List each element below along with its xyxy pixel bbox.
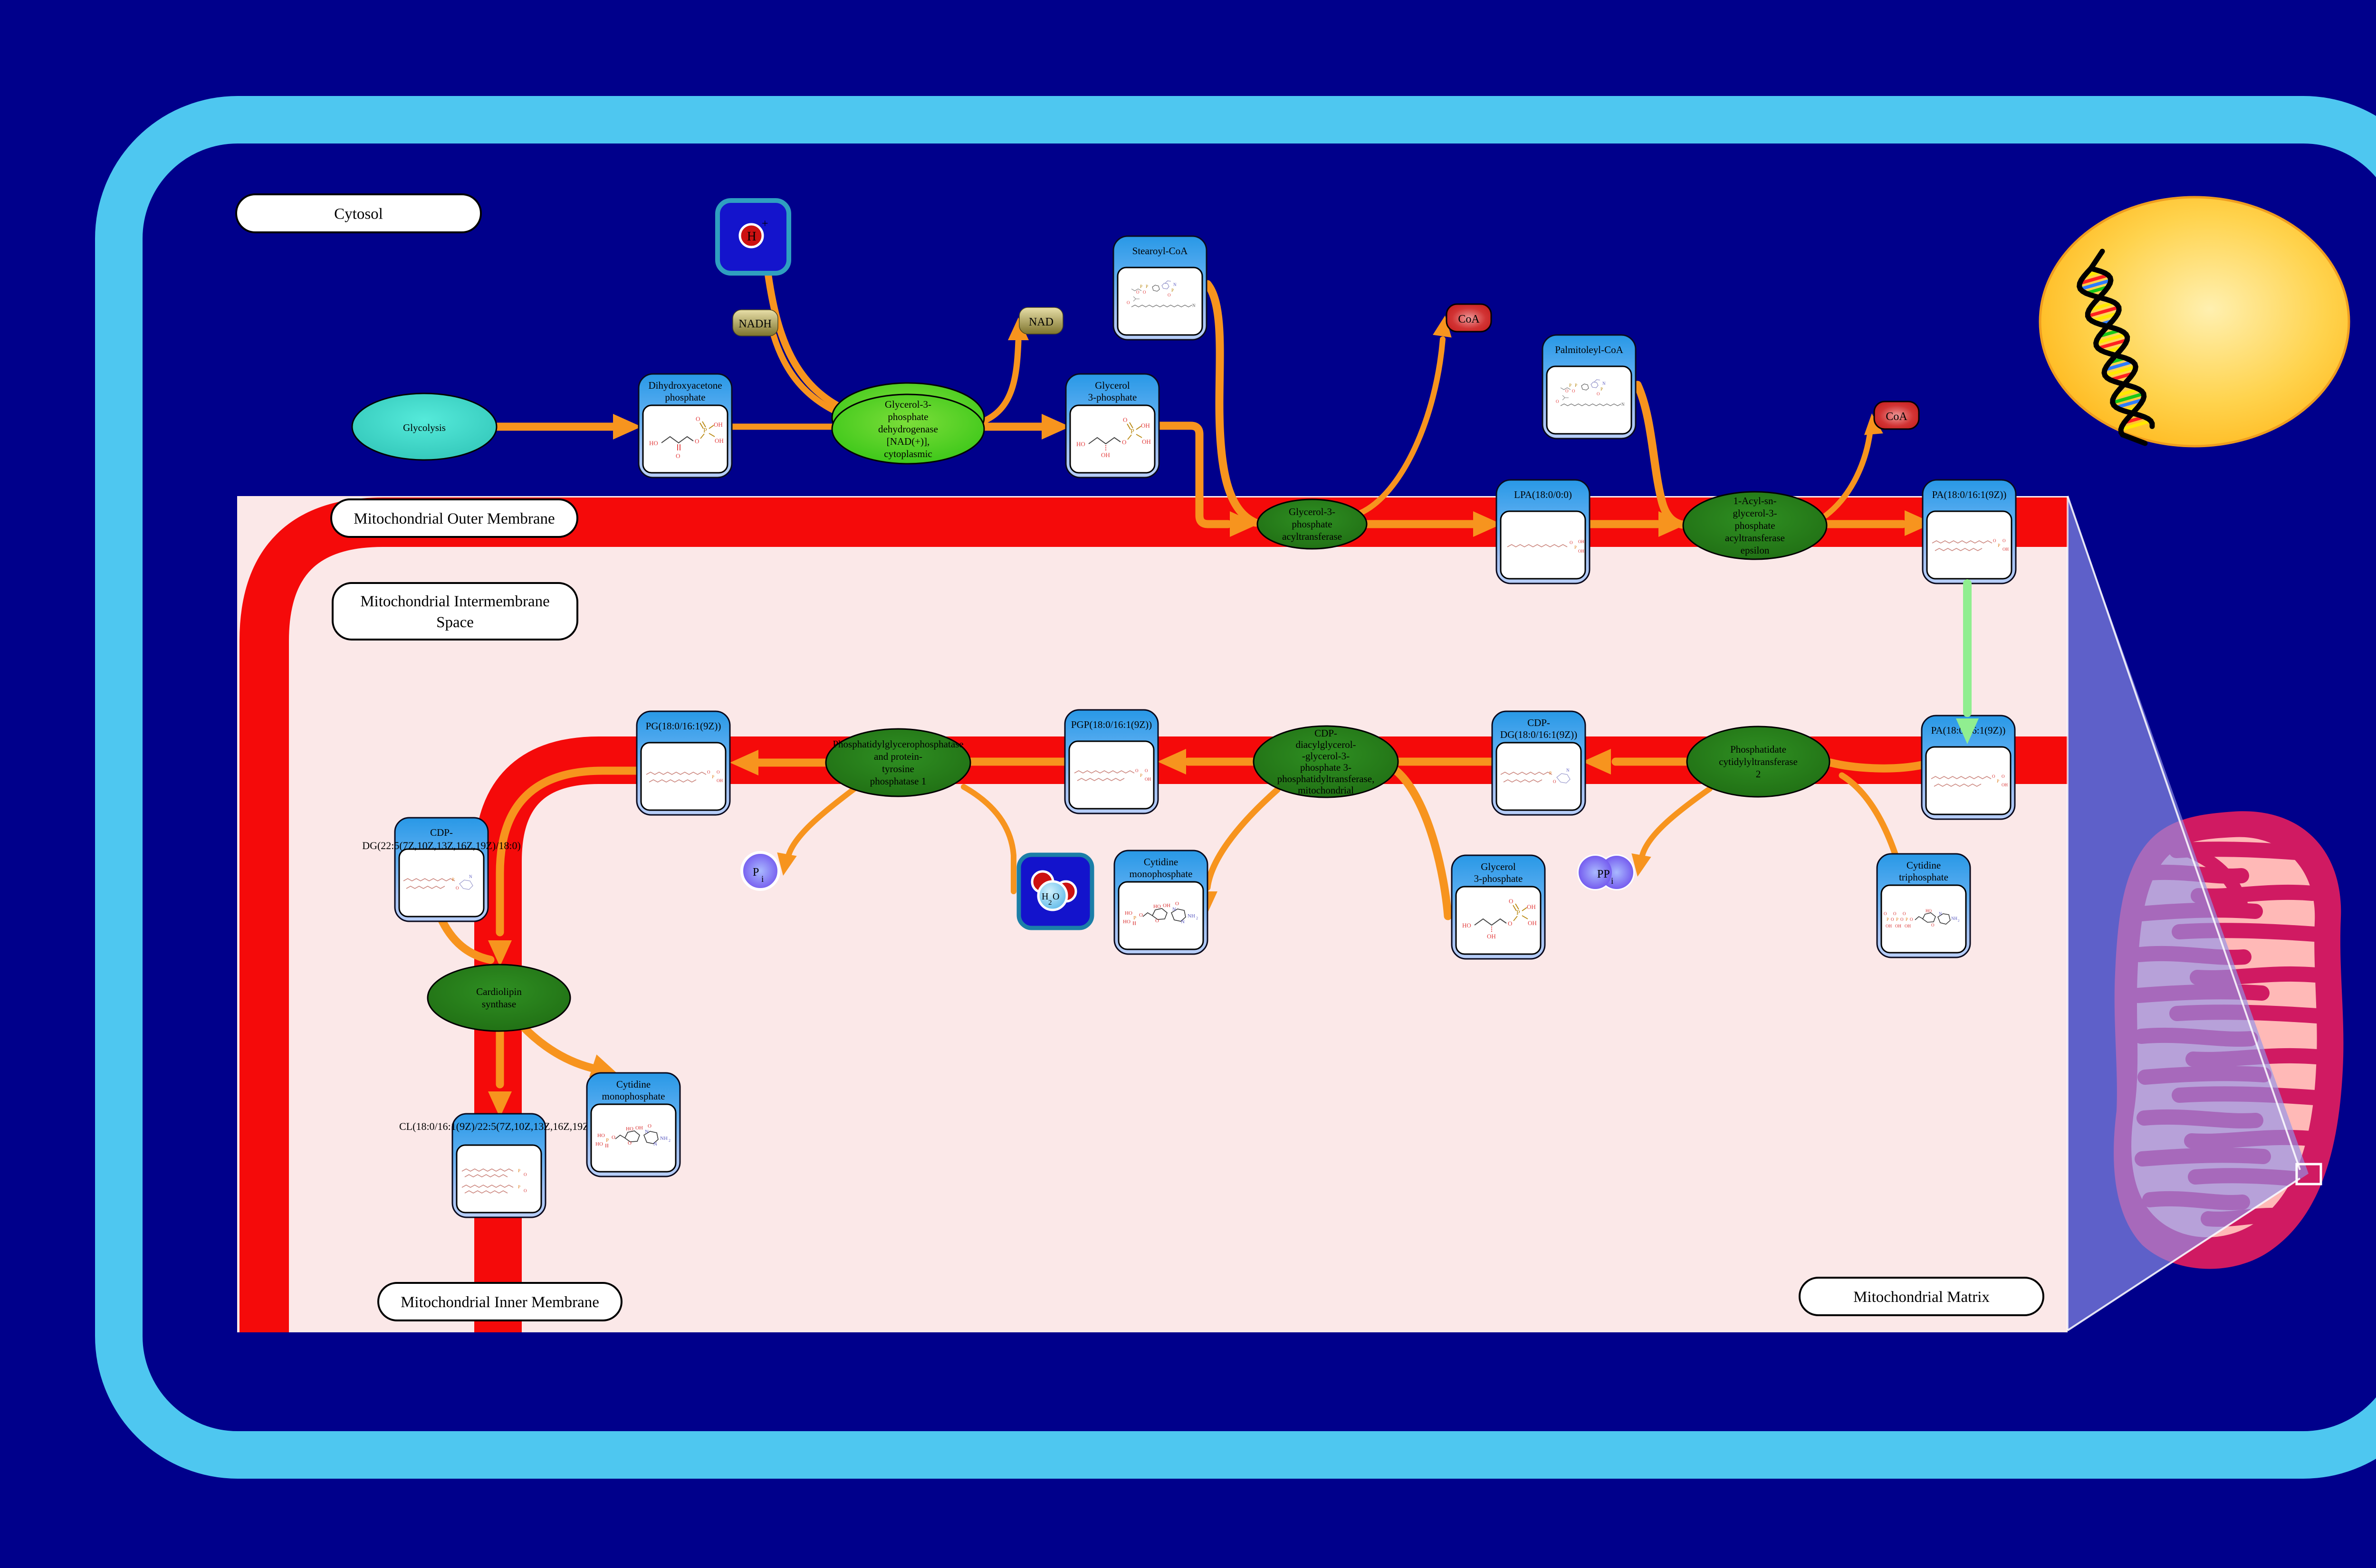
svg-text:O: O — [1556, 399, 1559, 404]
svg-text:DG(22:5(7Z,10Z,13Z,16Z,19Z)/18: DG(22:5(7Z,10Z,13Z,16Z,19Z)/18:0) — [362, 840, 521, 851]
svg-text:phosphate 3-: phosphate 3- — [1300, 762, 1351, 773]
svg-text:O: O — [1884, 911, 1887, 916]
svg-text:O: O — [1168, 293, 1171, 297]
svg-text:2: 2 — [1196, 916, 1198, 920]
svg-text:Glycerol-3-: Glycerol-3- — [885, 399, 931, 410]
svg-text:OH: OH — [1527, 903, 1536, 910]
svg-text:O: O — [1123, 416, 1127, 423]
svg-text:HO: HO — [649, 440, 658, 447]
svg-text:i: i — [1611, 876, 1613, 886]
svg-text:N: N — [1172, 907, 1176, 912]
svg-text:phosphatidyltransferase,: phosphatidyltransferase, — [1277, 773, 1375, 784]
svg-text:O: O — [676, 452, 680, 459]
svg-text:P: P — [1516, 909, 1520, 917]
svg-text:i: i — [761, 874, 764, 884]
svg-text:O: O — [628, 1140, 632, 1146]
svg-text:O: O — [717, 770, 720, 774]
svg-text:Phosphatidate: Phosphatidate — [1730, 744, 1786, 755]
svg-text:glycerol-3-: glycerol-3- — [1733, 507, 1777, 519]
svg-text:OH: OH — [635, 1125, 643, 1131]
svg-text:O: O — [1992, 774, 1995, 779]
svg-text:1-Acyl-sn-: 1-Acyl-sn- — [1734, 495, 1777, 507]
svg-text:PA(18:0/16:1(9Z)): PA(18:0/16:1(9Z)) — [1932, 489, 2007, 500]
svg-text:acyltransferase: acyltransferase — [1282, 531, 1342, 542]
svg-text:O: O — [1145, 768, 1148, 773]
svg-text:O: O — [1143, 290, 1146, 295]
svg-text:N: N — [1602, 381, 1606, 386]
svg-text:[NAD(+)],: [NAD(+)], — [887, 436, 930, 447]
svg-text:HO: HO — [626, 1126, 633, 1132]
svg-text:acyltransferase: acyltransferase — [1725, 532, 1785, 544]
svg-text:P: P — [703, 427, 707, 434]
svg-text:NADH: NADH — [738, 318, 771, 330]
svg-text:phosphate: phosphate — [1292, 518, 1332, 530]
svg-text:HO: HO — [1125, 910, 1132, 916]
svg-text:Glycolysis: Glycolysis — [403, 422, 446, 433]
svg-text:P: P — [1575, 383, 1577, 388]
svg-text:-glycerol-3-: -glycerol-3- — [1302, 750, 1350, 762]
svg-text:O: O — [1509, 898, 1513, 905]
svg-text:Mitochondrial Inner Membrane: Mitochondrial Inner Membrane — [401, 1294, 599, 1311]
svg-text:O: O — [1572, 389, 1575, 393]
svg-text:Glycerol: Glycerol — [1095, 380, 1130, 391]
svg-text:Palmitoleyl-CoA: Palmitoleyl-CoA — [1555, 344, 1623, 355]
svg-text:O: O — [648, 1123, 651, 1129]
svg-text:OH: OH — [1487, 933, 1496, 940]
svg-text:CDP-: CDP- — [430, 827, 453, 838]
svg-text:2: 2 — [1048, 899, 1052, 907]
svg-text:epsilon: epsilon — [1741, 545, 1770, 556]
svg-text:P: P — [1140, 284, 1142, 289]
svg-text:OH: OH — [717, 778, 723, 783]
svg-text:CL(18:0/16:1(9Z)/22:5(7Z,10Z,1: CL(18:0/16:1(9Z)/22:5(7Z,10Z,13Z,16Z,19Z… — [399, 1120, 614, 1132]
svg-text:P: P — [1574, 545, 1577, 550]
svg-text:O: O — [696, 415, 700, 422]
svg-text:OH: OH — [1141, 422, 1150, 429]
svg-text:N: N — [653, 1141, 657, 1147]
svg-text:CoA: CoA — [1458, 313, 1480, 325]
svg-text:P: P — [753, 866, 759, 879]
svg-text:2: 2 — [1756, 768, 1761, 780]
svg-text:2: 2 — [669, 1138, 671, 1143]
svg-text:H: H — [1042, 891, 1048, 902]
svg-text:Cytosol: Cytosol — [334, 206, 383, 223]
svg-text:OH: OH — [715, 437, 724, 444]
svg-text:CDP-: CDP- — [1314, 727, 1337, 739]
svg-text:Cytidine: Cytidine — [1907, 860, 1941, 871]
svg-text:OH: OH — [1145, 777, 1151, 782]
svg-text:P: P — [1906, 917, 1908, 922]
svg-text:O: O — [456, 886, 459, 890]
svg-text:and protein-: and protein- — [874, 751, 922, 762]
svg-text:HO: HO — [597, 1133, 605, 1138]
svg-text:Cardiolipin: Cardiolipin — [476, 986, 522, 997]
svg-text:P: P — [1140, 773, 1142, 778]
svg-text:P: P — [452, 877, 454, 882]
svg-text:Cytidine: Cytidine — [1144, 856, 1178, 868]
svg-text:P: P — [1887, 917, 1889, 922]
svg-text:P: P — [1131, 428, 1134, 435]
svg-text:OH: OH — [714, 421, 723, 428]
svg-text:CoA: CoA — [1886, 411, 1907, 423]
svg-text:O: O — [1910, 917, 1913, 922]
svg-text:O: O — [1155, 918, 1159, 924]
svg-text:OH: OH — [1578, 549, 1584, 554]
svg-text:OH: OH — [2002, 547, 2009, 552]
svg-text:O: O — [2002, 538, 2006, 543]
svg-text:dehydrogenase: dehydrogenase — [878, 423, 938, 435]
svg-text:Mitochondrial Matrix: Mitochondrial Matrix — [1853, 1289, 1990, 1306]
svg-text:Mitochondrial Outer Membrane: Mitochondrial Outer Membrane — [354, 510, 555, 527]
svg-text:N: N — [1181, 919, 1185, 925]
svg-text:diacylglycerol-: diacylglycerol- — [1295, 739, 1356, 750]
svg-text:O: O — [1053, 891, 1059, 902]
svg-text:PGP(18:0/16:1(9Z)): PGP(18:0/16:1(9Z)) — [1071, 719, 1152, 730]
svg-text:Glycerol-3-: Glycerol-3- — [1289, 506, 1335, 517]
svg-text:O: O — [2002, 774, 2005, 779]
svg-text:DG(18:0/16:1(9Z)): DG(18:0/16:1(9Z)) — [1500, 729, 1577, 740]
svg-text:monophosphate: monophosphate — [1130, 868, 1193, 880]
svg-text:monophosphate: monophosphate — [602, 1090, 665, 1102]
svg-text:OH: OH — [1101, 451, 1110, 459]
svg-text:NH: NH — [660, 1136, 668, 1141]
svg-text:O: O — [1565, 389, 1569, 393]
svg-text:N: N — [1621, 402, 1625, 407]
svg-text:H: H — [747, 229, 757, 243]
svg-text:Phosphatidylglycerophosphatase: Phosphatidylglycerophosphatase — [833, 738, 963, 750]
svg-text:O: O — [707, 770, 710, 774]
svg-text:Dihydroxyacetone: Dihydroxyacetone — [648, 380, 722, 391]
svg-text:NAD: NAD — [1029, 316, 1054, 328]
svg-text:mitochondrial: mitochondrial — [1298, 784, 1354, 796]
svg-text:OH: OH — [2002, 783, 2008, 787]
svg-text:phosphate: phosphate — [1734, 520, 1775, 531]
svg-text:HO: HO — [1076, 440, 1085, 448]
svg-text:OH: OH — [1886, 924, 1892, 928]
svg-text:O: O — [1553, 779, 1556, 784]
svg-text:O: O — [1903, 911, 1906, 916]
svg-text:Cytidine: Cytidine — [616, 1079, 651, 1090]
svg-text:Space: Space — [436, 614, 474, 631]
svg-text:P: P — [1569, 383, 1571, 388]
svg-text:HO: HO — [1462, 922, 1471, 929]
svg-text:P: P — [1896, 917, 1898, 922]
svg-text:P: P — [1146, 284, 1148, 289]
svg-text:P: P — [1600, 387, 1603, 392]
svg-text:P: P — [518, 1185, 520, 1189]
svg-text:N: N — [1192, 303, 1196, 308]
svg-text:P: P — [606, 1138, 609, 1143]
svg-text:OH: OH — [1895, 924, 1901, 928]
svg-text:O: O — [1597, 392, 1600, 396]
svg-text:CDP-: CDP- — [1527, 717, 1550, 728]
svg-text:phosphatase 1: phosphatase 1 — [870, 775, 926, 787]
svg-text:HO: HO — [1926, 908, 1932, 913]
svg-text:O: O — [695, 438, 699, 445]
svg-text:O: O — [1993, 538, 1996, 543]
svg-text:N: N — [469, 874, 472, 879]
svg-text:3-phosphate: 3-phosphate — [1474, 873, 1523, 884]
svg-text:cytoplasmic: cytoplasmic — [884, 448, 932, 459]
svg-text:P: P — [1997, 779, 1999, 784]
svg-text:O: O — [1135, 768, 1139, 773]
svg-text:N: N — [1566, 768, 1570, 773]
svg-text:O: O — [1127, 300, 1130, 305]
svg-text:OH: OH — [1905, 924, 1911, 928]
svg-text:triphosphate: triphosphate — [1899, 871, 1948, 883]
svg-text:OH: OH — [1142, 438, 1151, 445]
svg-text:N: N — [1939, 911, 1942, 916]
svg-text:2: 2 — [1958, 919, 1960, 923]
svg-text:O: O — [1570, 540, 1573, 545]
svg-text:Glycerol: Glycerol — [1481, 861, 1516, 872]
svg-text:O: O — [1931, 923, 1935, 927]
svg-text:O: O — [612, 1135, 615, 1140]
svg-text:+: + — [762, 218, 768, 230]
svg-text:O: O — [1175, 901, 1179, 907]
svg-text:OH: OH — [1578, 539, 1584, 544]
svg-text:phosphate: phosphate — [665, 392, 705, 403]
svg-text:phosphate: phosphate — [888, 411, 928, 422]
svg-text:P: P — [712, 774, 714, 779]
svg-text:O: O — [1139, 912, 1143, 918]
svg-text:P: P — [1549, 771, 1552, 775]
svg-text:O: O — [1508, 920, 1512, 927]
svg-text:O: O — [1891, 917, 1894, 922]
svg-text:N: N — [1173, 282, 1177, 287]
svg-text:P: P — [1171, 288, 1174, 293]
svg-text:O: O — [524, 1172, 527, 1177]
svg-text:O: O — [1122, 439, 1126, 446]
svg-text:HO: HO — [595, 1141, 603, 1147]
svg-text:P: P — [1133, 915, 1136, 921]
svg-text:P: P — [518, 1168, 520, 1173]
svg-text:HO: HO — [1123, 919, 1131, 925]
svg-text:cytidylyltransferase: cytidylyltransferase — [1719, 756, 1798, 767]
svg-text:tyrosine: tyrosine — [882, 763, 914, 774]
svg-text:NH: NH — [1951, 916, 1957, 921]
svg-text:O: O — [1900, 917, 1904, 922]
svg-text:synthase: synthase — [482, 998, 516, 1010]
svg-text:P: P — [1998, 543, 2000, 548]
svg-text:3-phosphate: 3-phosphate — [1088, 392, 1137, 403]
svg-text:NH: NH — [1188, 913, 1195, 919]
svg-text:Mitochondrial Intermembrane: Mitochondrial Intermembrane — [360, 593, 550, 610]
svg-text:PP: PP — [1597, 868, 1610, 880]
svg-text:O: O — [1893, 911, 1897, 916]
svg-text:O: O — [1136, 290, 1140, 295]
svg-text:Stearoyl-CoA: Stearoyl-CoA — [1132, 245, 1188, 257]
svg-text:O: O — [524, 1188, 527, 1193]
svg-text:LPA(18:0/0:0): LPA(18:0/0:0) — [1514, 489, 1572, 500]
svg-text:N: N — [645, 1129, 649, 1135]
svg-text:PG(18:0/16:1(9Z)): PG(18:0/16:1(9Z)) — [646, 720, 721, 732]
svg-text:OH: OH — [1528, 919, 1537, 927]
svg-text:HO: HO — [1153, 904, 1161, 909]
svg-text:OH: OH — [1163, 903, 1170, 908]
